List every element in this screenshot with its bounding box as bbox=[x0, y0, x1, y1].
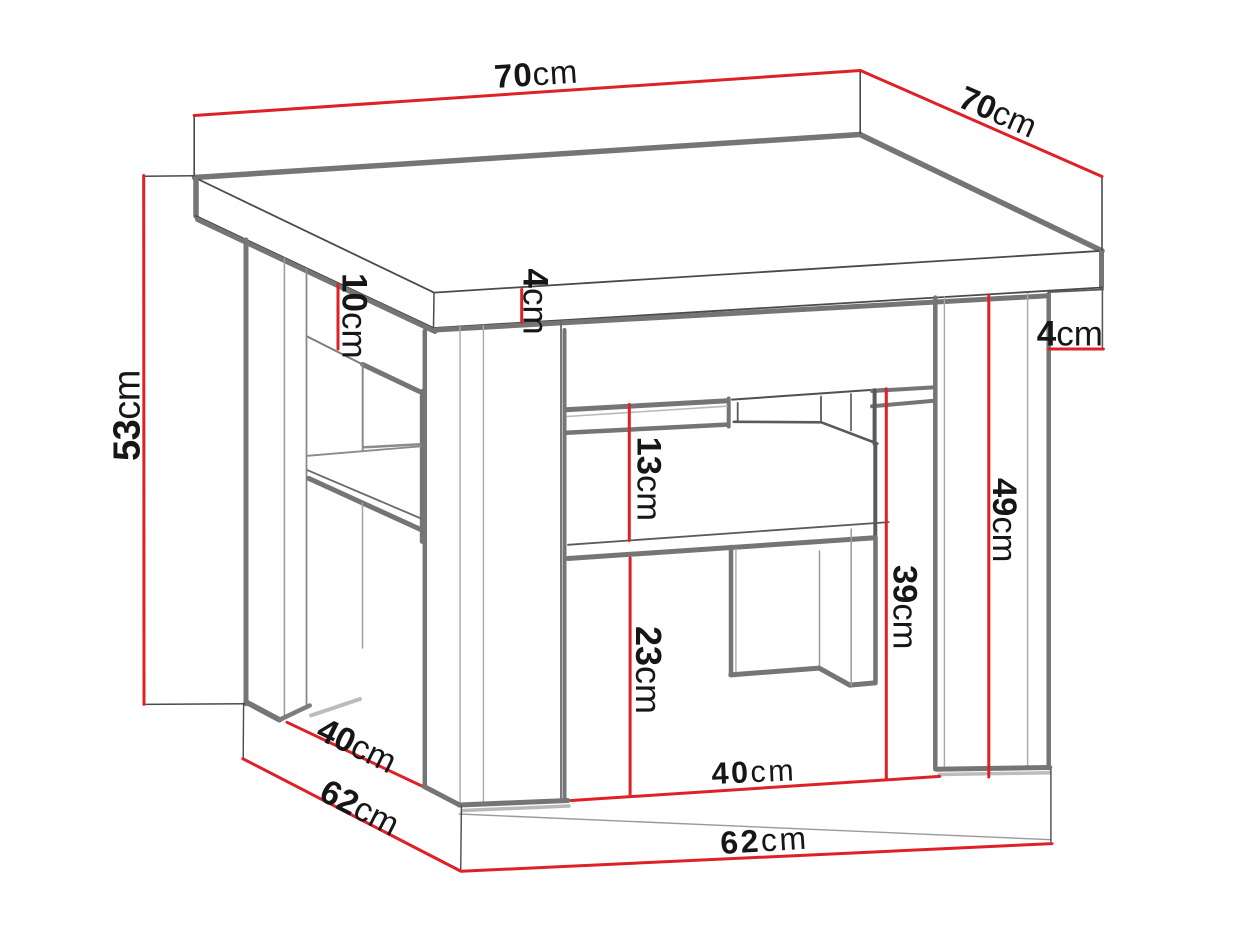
svg-text:40cm: 40cm bbox=[711, 753, 797, 791]
svg-text:10cm: 10cm bbox=[335, 273, 374, 359]
svg-text:49cm: 49cm bbox=[985, 478, 1023, 562]
svg-text:4cm: 4cm bbox=[1037, 315, 1103, 354]
svg-text:4cm: 4cm bbox=[516, 269, 555, 335]
svg-text:62cm: 62cm bbox=[719, 820, 809, 861]
svg-text:53cm: 53cm bbox=[107, 370, 149, 461]
svg-text:23cm: 23cm bbox=[628, 626, 669, 714]
svg-text:13cm: 13cm bbox=[630, 437, 668, 521]
svg-text:70cm: 70cm bbox=[493, 53, 579, 95]
svg-text:39cm: 39cm bbox=[886, 565, 924, 649]
